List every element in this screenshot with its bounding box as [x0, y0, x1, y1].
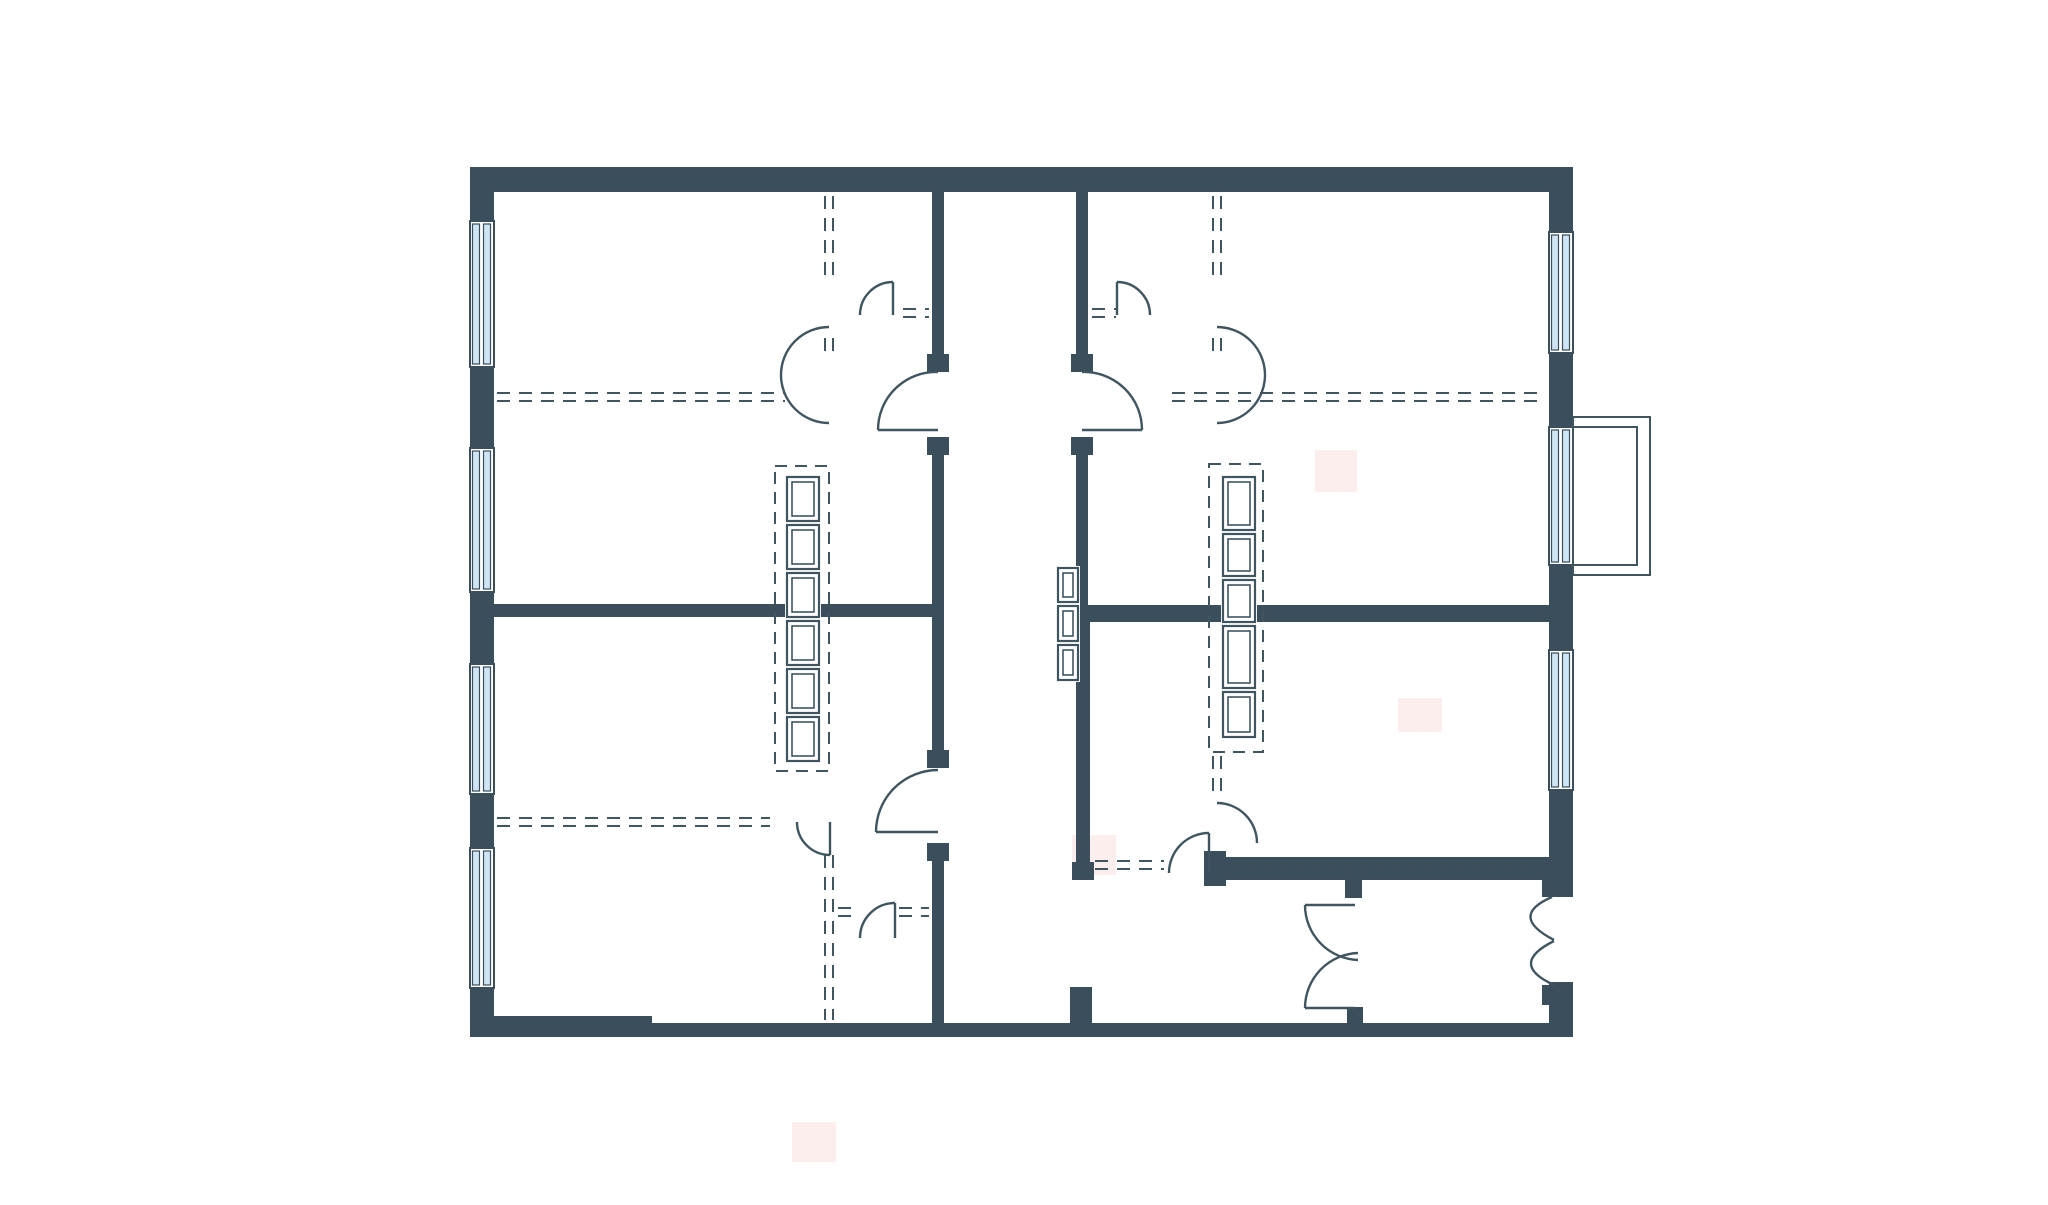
window-glass-pane — [473, 667, 480, 791]
post-entry-door-top — [1542, 880, 1562, 897]
post-hall-door-top — [1345, 880, 1362, 898]
window-glass-pane — [473, 451, 480, 589]
window-left-1 — [470, 221, 494, 367]
wardrobe-right-room — [1221, 475, 1257, 739]
window-right-3 — [1549, 650, 1573, 790]
cap-bathroom-left-bottom — [1072, 862, 1094, 880]
window-right-2 — [1549, 427, 1573, 565]
window-glass-pane — [1563, 430, 1570, 562]
watermark-blob-1 — [1315, 450, 1357, 492]
wardrobe-left-room — [785, 475, 821, 763]
window-glass-pane — [484, 451, 491, 589]
floor-plan-drawing — [0, 0, 2048, 1205]
wardrobe-corridor — [1056, 566, 1080, 682]
window-glass-pane — [1552, 430, 1559, 562]
wall-bottom-thick-left — [470, 1016, 652, 1026]
wall-top — [470, 167, 1573, 192]
window-left-2 — [470, 448, 494, 592]
corridor-left-wall-upper — [932, 192, 944, 372]
window-glass-pane — [1552, 653, 1559, 787]
watermark-blob-2 — [1398, 698, 1442, 732]
window-glass-pane — [484, 224, 491, 364]
room-divider-right — [1090, 605, 1549, 622]
window-glass-pane — [484, 667, 491, 791]
window-right-1 — [1549, 232, 1573, 353]
cap-corridor-left-upper-1 — [927, 354, 949, 372]
cap-corridor-right-upper-1 — [1071, 354, 1093, 372]
cap-corridor-left-lower-1 — [927, 750, 949, 768]
corridor-left-wall-mid — [932, 437, 944, 768]
window-glass-pane — [473, 851, 480, 985]
corridor-right-wall-upper-a — [1076, 192, 1088, 372]
cap-corridor-left-upper-2 — [927, 437, 949, 455]
cap-bathroom-door-jamb — [1204, 851, 1226, 886]
window-glass-pane — [473, 224, 480, 364]
post-entry-door-bottom — [1542, 985, 1562, 1005]
window-glass-pane — [1563, 653, 1570, 787]
window-glass-pane — [1563, 235, 1570, 350]
watermark-blob-4 — [792, 1122, 836, 1162]
post-hall-door-bottom — [1347, 1007, 1363, 1023]
bathroom-bottom-wall — [1212, 857, 1573, 880]
window-glass-pane — [484, 851, 491, 985]
window-left-3 — [470, 664, 494, 794]
cap-corridor-left-lower-2 — [927, 843, 949, 861]
room-divider-left — [494, 604, 944, 617]
window-glass-pane — [1552, 235, 1559, 350]
corridor-left-wall-lower — [932, 843, 944, 1023]
cap-corridor-right-upper-2 — [1071, 437, 1093, 455]
window-left-4 — [470, 848, 494, 988]
floor-plan-page — [0, 0, 2048, 1205]
stub-corridor-bottom — [1070, 987, 1092, 1025]
